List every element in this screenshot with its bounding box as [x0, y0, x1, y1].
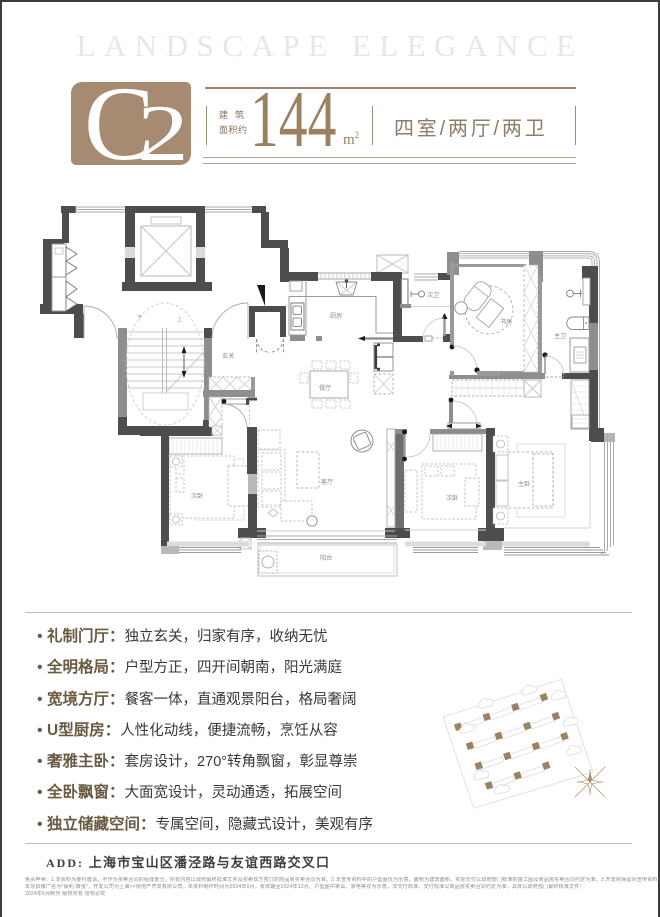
svg-text:厨房: 厨房	[330, 312, 342, 320]
svg-text:上: 上	[177, 316, 182, 323]
svg-text:次卧: 次卧	[191, 492, 203, 500]
svg-text:次卫: 次卫	[427, 291, 439, 299]
svg-text:书房: 书房	[500, 318, 512, 326]
svg-text:下: 下	[137, 315, 142, 321]
svg-text:主卧: 主卧	[518, 480, 530, 488]
svg-text:玄关: 玄关	[222, 352, 234, 360]
svg-text:客厅: 客厅	[321, 478, 333, 486]
svg-text:主卫: 主卫	[554, 332, 566, 340]
svg-text:次卧: 次卧	[446, 494, 458, 502]
svg-text:阳台: 阳台	[320, 554, 332, 562]
svg-text:餐厅: 餐厅	[319, 384, 331, 392]
